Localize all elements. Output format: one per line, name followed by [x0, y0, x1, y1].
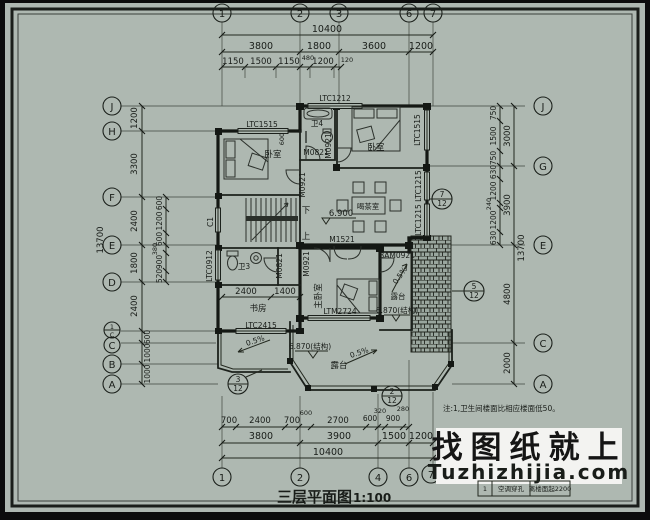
dim: 1000: [143, 364, 152, 383]
dim-top-overall: 10400: [312, 24, 342, 35]
dim: 1000: [143, 343, 152, 362]
axis-bubble-label: C: [540, 339, 547, 350]
dim: 600: [278, 133, 286, 145]
dim: 900: [155, 255, 164, 270]
dim: 1200: [489, 210, 498, 229]
dim: 2000: [503, 352, 513, 374]
window-label: LTM2724: [323, 307, 357, 316]
dim: 120: [341, 56, 353, 64]
dim: 750: [489, 151, 498, 166]
detail-den: 12: [469, 291, 479, 300]
dim: 600: [300, 409, 312, 417]
door-label: BAM0921: [379, 251, 415, 260]
dim: 1150: [278, 57, 300, 67]
dim: 600: [143, 330, 152, 345]
title-scale: 1:100: [353, 491, 391, 505]
dim: 900: [386, 414, 401, 423]
axis-bubble-label: F: [109, 193, 115, 204]
axis-bubble-label: E: [109, 241, 115, 252]
window-ltc1515-top: [238, 129, 288, 134]
room-label: 卧室: [367, 142, 385, 153]
detail-num: 7: [440, 190, 445, 199]
axis-bubble-label: A: [540, 380, 547, 391]
watermark-site-url: Tuzhizhijia.com: [428, 460, 630, 484]
window-label: LTC1515: [413, 114, 422, 146]
dim: 1800: [130, 252, 140, 274]
axis-bubble-label: H: [108, 127, 116, 138]
room-label: 喝茶室: [357, 201, 380, 211]
dim: 3300: [130, 153, 140, 175]
axis-bubble-label: G: [539, 162, 547, 173]
axis-bubble-label: 1: [219, 473, 225, 484]
detail-num: 2: [390, 387, 395, 396]
dim: 700: [284, 416, 300, 426]
dim: 1150: [222, 57, 244, 67]
axis-bubble-label: J: [541, 102, 545, 113]
axis-bubble-label: E: [540, 241, 546, 252]
dim: 2700: [327, 416, 349, 426]
dim: 1200: [489, 181, 498, 200]
room-label: 卧室: [264, 149, 282, 160]
window-label: C1: [206, 217, 215, 227]
watermark: 找图纸就上 Tuzhizhijia.com: [428, 428, 630, 484]
window-c1: [216, 208, 221, 232]
elevation-value: 6.870(结构): [376, 305, 418, 315]
detail-bubble-2-12: 2 12: [382, 386, 402, 406]
window-ltm2724: [308, 316, 370, 321]
door-label: M1521: [329, 235, 355, 244]
axis-bubble-label: J: [110, 102, 114, 113]
title-text: 三层平面图: [277, 488, 352, 506]
room-label: 卫3: [238, 262, 250, 271]
door-label: M0921: [302, 251, 311, 277]
axis-bubble-label: 4: [375, 473, 381, 484]
window-ltc1515-right: [425, 110, 430, 150]
dim: 1500: [382, 431, 406, 442]
dim: 3800: [249, 41, 273, 52]
dim: 380: [151, 243, 159, 255]
axis-bubble-label: 6: [406, 473, 412, 484]
door-label: M0921: [298, 172, 307, 198]
axis-bubble-label: B: [109, 360, 116, 371]
dim: 600: [155, 196, 164, 211]
dim: 1200: [155, 211, 164, 230]
detail-num: 3: [236, 375, 241, 384]
room-label: 书房: [249, 303, 266, 314]
axis-bubble-label: 1: [110, 323, 114, 331]
dim: 2400: [249, 416, 271, 426]
window-ltc1215-a: [425, 172, 430, 200]
dim: 1200: [130, 107, 140, 129]
window-label: LTC2415: [245, 321, 277, 330]
dim: 1200: [312, 57, 334, 67]
dim: 3900: [327, 431, 351, 442]
dim: 2400: [130, 210, 140, 232]
axis-bubble-label: D: [108, 278, 116, 289]
legend-cell: 空调穿孔: [498, 484, 525, 493]
detail-den: 12: [437, 199, 447, 208]
stair-down-label: 下: [302, 206, 311, 216]
dim: 750: [489, 106, 498, 121]
dim: 3800: [249, 431, 273, 442]
dim: 700: [221, 416, 237, 426]
axis-bubble-label: A: [109, 380, 116, 391]
legend-cell: 离楼面起2200: [529, 484, 572, 493]
blueprint-screenshot: 10400 3800 1800 3600 1200 1150 1500 1150…: [0, 0, 650, 520]
window-ltc0912: [216, 250, 221, 280]
dim: 1200: [409, 41, 433, 52]
detail-den: 12: [233, 384, 243, 393]
dim: 520: [155, 269, 164, 284]
tiled-roof-hatch: [411, 236, 451, 352]
dim: 2400: [130, 295, 140, 317]
room-label: 卫4: [311, 119, 323, 128]
window-label: LTC1215: [414, 170, 423, 202]
window-label: LTC1212: [319, 94, 351, 103]
room-label: 露台: [391, 291, 406, 301]
axis-bubble-label: 6: [406, 9, 412, 20]
dim: 630: [489, 231, 498, 246]
dim: 240: [485, 198, 493, 210]
legend-cell: 1: [483, 485, 487, 493]
axis-bubble-label: 7: [430, 9, 436, 20]
dim: 4800: [503, 283, 513, 305]
room-label: 主卧室: [313, 283, 324, 309]
dim: 1800: [307, 41, 331, 52]
door-label: M0821: [275, 253, 284, 279]
door-label: M0921: [324, 133, 333, 159]
dim: 3000: [503, 125, 513, 147]
dim: 630: [489, 165, 498, 180]
dim-bottom-overall: 10400: [313, 447, 343, 458]
window-label: LTC0912: [205, 250, 214, 282]
dim: 1200: [409, 431, 433, 442]
plan-note: 注:1,卫生间楼面比相应楼面低50。: [443, 403, 560, 413]
dim: 1400: [274, 287, 296, 297]
dim: 2400: [235, 287, 257, 297]
dim: 3600: [362, 41, 386, 52]
axis-bubble-label: 2: [297, 473, 303, 484]
dim: 1500: [250, 57, 272, 67]
elevation-value: 6.870(结构): [289, 341, 331, 351]
axis-bubble-label: 2: [297, 9, 303, 20]
axis-bubble-label: C: [109, 341, 116, 352]
dim: 600: [363, 414, 378, 423]
window-label: LTC1215: [414, 204, 423, 236]
dim: 3900: [503, 194, 513, 216]
axis-bubble-label: 1: [219, 9, 225, 20]
detail-num: 5: [472, 282, 477, 291]
detail-den: 12: [387, 396, 397, 405]
stair-rail: [246, 216, 298, 221]
floor-plan-drawing: 10400 3800 1800 3600 1200 1150 1500 1150…: [0, 0, 650, 520]
window-ltc1215-b: [425, 204, 430, 236]
stair-up-label: 上: [302, 232, 311, 242]
room-label: 露台: [330, 360, 347, 371]
dim: 320: [374, 407, 386, 415]
dim: 1500: [489, 126, 498, 145]
dim: 280: [397, 405, 409, 413]
dim-right-overall: 13700: [517, 234, 527, 261]
window-label: LTC1515: [246, 120, 278, 129]
axis-bubble-label: 3: [336, 9, 342, 20]
